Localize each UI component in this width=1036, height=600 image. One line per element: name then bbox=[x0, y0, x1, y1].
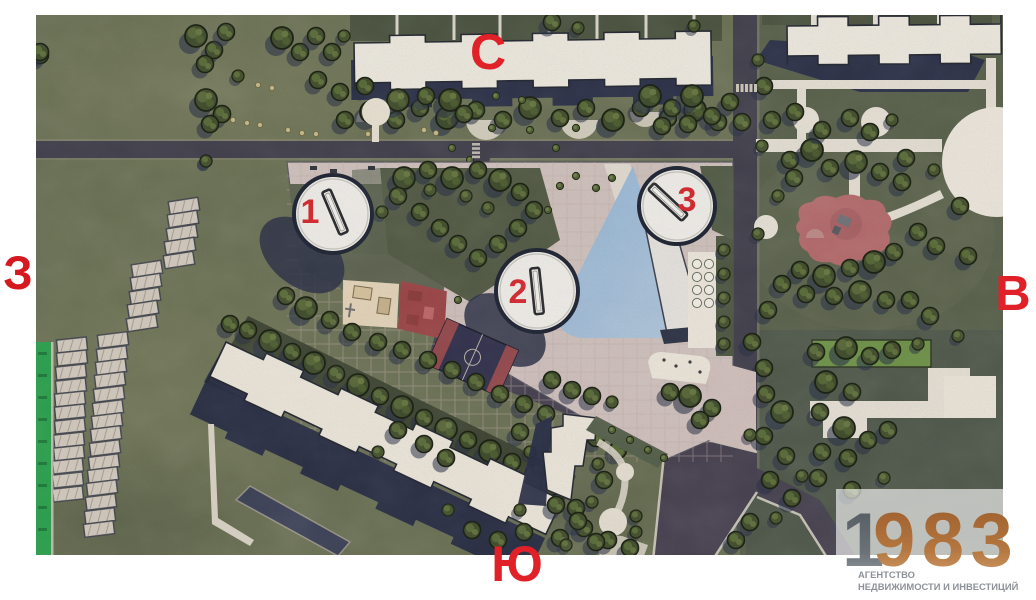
svg-text:Ю: Ю bbox=[491, 536, 543, 592]
svg-text:С: С bbox=[470, 24, 506, 80]
svg-text:В: В bbox=[995, 267, 1030, 321]
svg-text:НЕДВИЖИМОСТИ И ИНВЕСТИЦИЙ: НЕДВИЖИМОСТИ И ИНВЕСТИЦИЙ bbox=[858, 581, 1019, 592]
svg-text:З: З bbox=[3, 246, 32, 299]
svg-text:АГЕНТСТВО: АГЕНТСТВО bbox=[858, 569, 915, 580]
